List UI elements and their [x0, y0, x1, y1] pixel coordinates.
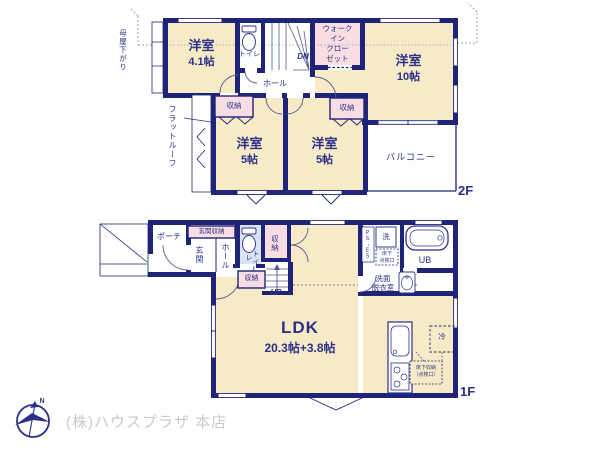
floor2-label: 2F: [458, 183, 482, 198]
ldk-size: 20.3帖+3.8帖: [225, 341, 375, 355]
wic-label: ウォーク イン クロー ゼット: [313, 24, 362, 65]
washroom-label: 洗面 脱衣室: [367, 274, 399, 293]
company-name: (株)ハウスプラザ 本店: [66, 414, 326, 432]
fridge-label: 冷: [430, 333, 454, 342]
kitchen-counter: [388, 322, 412, 393]
ldk-name: LDK: [250, 318, 350, 338]
balcony-label: バルコニー: [367, 152, 455, 163]
floorplan-graphics: [0, 0, 600, 450]
room-41-size: 4.1帖: [167, 56, 236, 69]
floor1-label: 1F: [460, 384, 484, 399]
bath-ub-label: UB: [410, 255, 440, 266]
hall-1f-label: ホール: [221, 241, 229, 271]
porch-label: ポーチ: [150, 232, 188, 241]
room-10-name: 洋室: [364, 53, 453, 68]
stairs-dn-label: DN: [293, 52, 313, 61]
floor-storage-label: 床下収納 （点検口）: [409, 365, 443, 378]
room-5r-name: 洋室: [285, 136, 364, 151]
closet-right-label: 収納: [330, 104, 364, 113]
inspection-hatch-label: 床下 点検口: [375, 251, 399, 264]
room-5r-size: 5帖: [285, 154, 364, 167]
washbasin-icon: [399, 272, 415, 293]
washer-label: 洗: [376, 233, 396, 242]
hall-2f-label: ホール: [238, 79, 312, 88]
flatroof-annotation: フラットルーフ: [168, 100, 176, 172]
compass-n-label: N: [37, 398, 47, 406]
closet-lower-1f-label: 収納: [238, 275, 265, 283]
stairs-up-label: UP: [264, 288, 288, 297]
genkan-storage-label: 玄関収納: [188, 228, 235, 236]
room-41-name: 洋室: [167, 38, 236, 53]
room-5l-size: 5帖: [214, 154, 285, 167]
closet-upper-1f-label: 収納: [271, 234, 279, 252]
genkan-label: 玄関: [195, 243, 203, 267]
room-5l-name: 洋室: [214, 136, 285, 151]
toilet-2f-label: トイレ: [236, 51, 263, 59]
toilet-2f-icon: [242, 26, 256, 51]
moyasagari-annotation: 母屋下がり: [119, 23, 127, 78]
compass-icon: [15, 401, 50, 437]
closet-left-label: 収納: [215, 102, 253, 111]
floorplan-page: 洋室 4.1帖 トイレ DN ホール ウォーク イン クロー ゼット 洋室 10…: [0, 0, 600, 450]
toilet-1f-label: トイレ: [245, 247, 259, 269]
ps-es-label: PS・ES: [364, 229, 370, 261]
bathtub-icon: [406, 226, 448, 250]
stairs-2f: [272, 23, 309, 70]
room-10-size: 10帖: [364, 71, 453, 84]
